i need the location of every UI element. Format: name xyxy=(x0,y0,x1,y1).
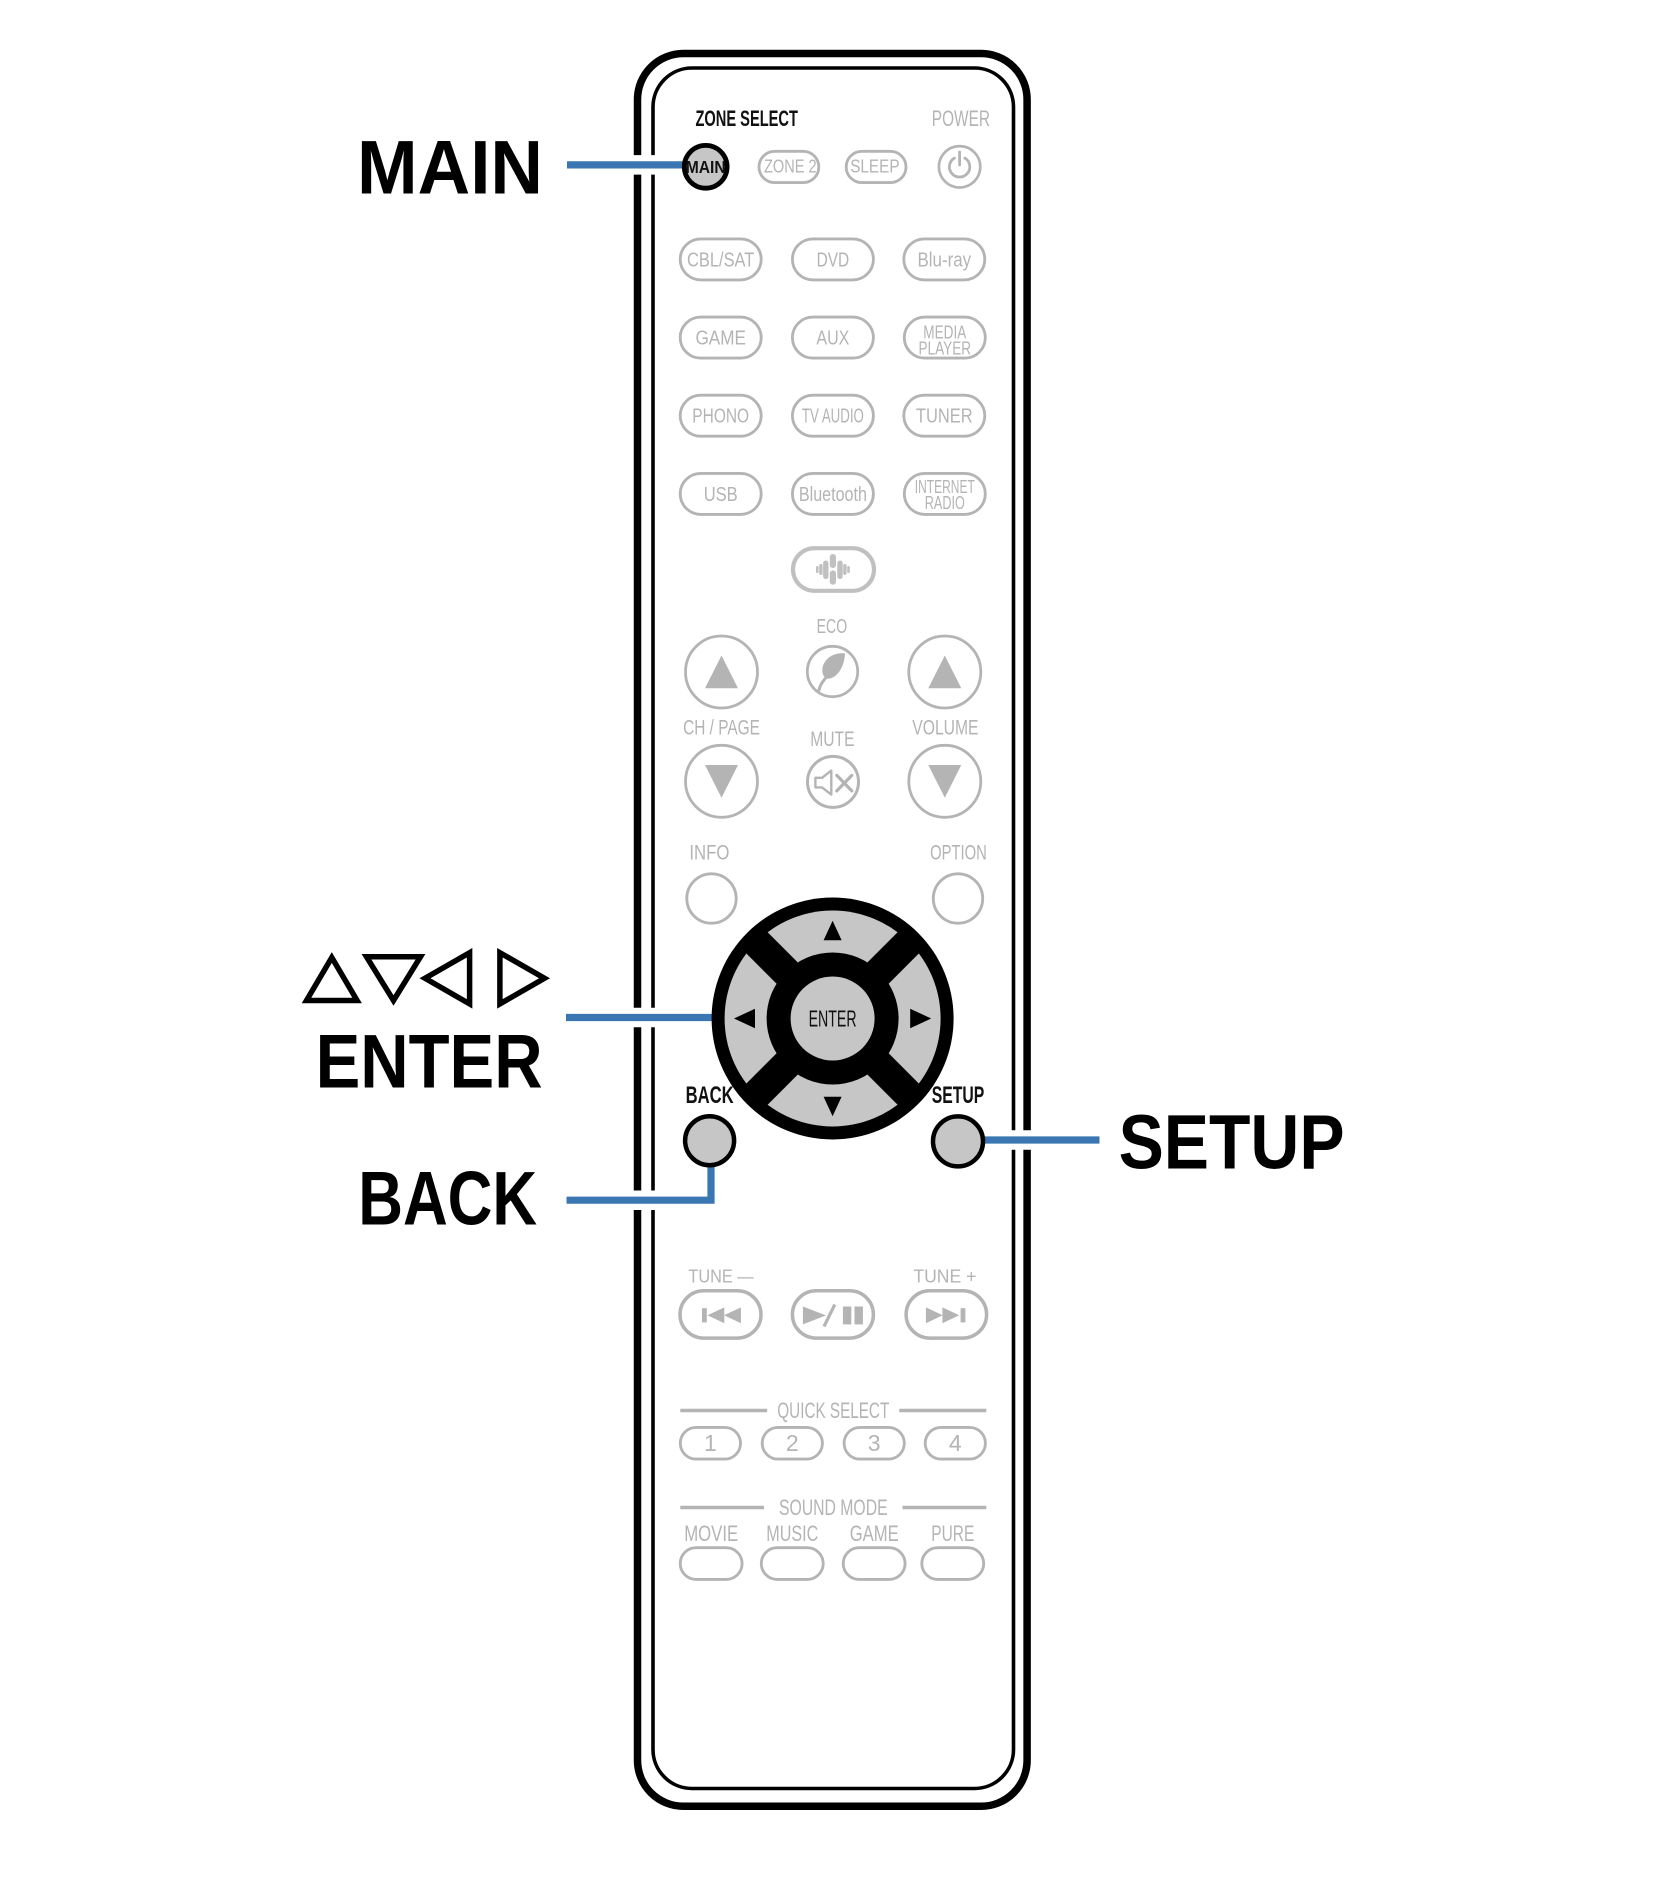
svg-text:MAIN: MAIN xyxy=(357,126,543,211)
svg-text:USB: USB xyxy=(704,484,738,506)
svg-text:ECO: ECO xyxy=(817,616,848,638)
svg-text:PLAYER: PLAYER xyxy=(919,339,972,359)
svg-text:BACK: BACK xyxy=(686,1082,734,1109)
svg-text:OPTION: OPTION xyxy=(930,841,987,865)
svg-text:2: 2 xyxy=(786,1430,799,1456)
svg-text:CH / PAGE: CH / PAGE xyxy=(683,716,760,740)
svg-text:ZONE 2: ZONE 2 xyxy=(764,156,817,177)
svg-text:ENTER: ENTER xyxy=(316,1019,543,1104)
svg-text:MUTE: MUTE xyxy=(810,727,854,751)
svg-text:QUICK SELECT: QUICK SELECT xyxy=(777,1398,889,1423)
svg-text:Blu-ray: Blu-ray xyxy=(918,249,972,271)
svg-text:PHONO: PHONO xyxy=(692,406,749,428)
svg-text:1: 1 xyxy=(704,1430,717,1456)
svg-text:SOUND MODE: SOUND MODE xyxy=(779,1495,888,1520)
svg-text:TUNER: TUNER xyxy=(916,406,973,428)
svg-text:GAME: GAME xyxy=(695,328,746,350)
svg-text:Bluetooth: Bluetooth xyxy=(799,484,867,506)
svg-text:VOLUME: VOLUME xyxy=(912,716,978,740)
svg-text:ZONE SELECT: ZONE SELECT xyxy=(695,106,798,131)
svg-text:RADIO: RADIO xyxy=(925,493,965,513)
svg-text:MOVIE: MOVIE xyxy=(684,1521,738,1546)
svg-text:SETUP: SETUP xyxy=(1119,1099,1345,1185)
svg-text:DVD: DVD xyxy=(817,249,850,271)
svg-text:TUNE +: TUNE + xyxy=(913,1265,976,1286)
svg-text:INFO: INFO xyxy=(689,841,729,865)
svg-text:ENTER: ENTER xyxy=(809,1005,857,1031)
svg-text:4: 4 xyxy=(949,1430,962,1456)
svg-text:POWER: POWER xyxy=(932,106,990,131)
svg-text:CBL/SAT: CBL/SAT xyxy=(687,249,754,271)
svg-text:TV AUDIO: TV AUDIO xyxy=(802,406,864,428)
svg-text:MAIN: MAIN xyxy=(686,157,726,177)
svg-text:PURE: PURE xyxy=(931,1521,974,1546)
svg-text:AUX: AUX xyxy=(816,328,849,350)
svg-text:SETUP: SETUP xyxy=(932,1082,985,1109)
svg-text:3: 3 xyxy=(868,1430,881,1456)
svg-text:TUNE —: TUNE — xyxy=(688,1265,754,1286)
svg-text:BACK: BACK xyxy=(358,1157,537,1242)
svg-text:SLEEP: SLEEP xyxy=(850,156,899,177)
svg-text:MUSIC: MUSIC xyxy=(766,1521,818,1546)
svg-text:GAME: GAME xyxy=(850,1521,899,1546)
